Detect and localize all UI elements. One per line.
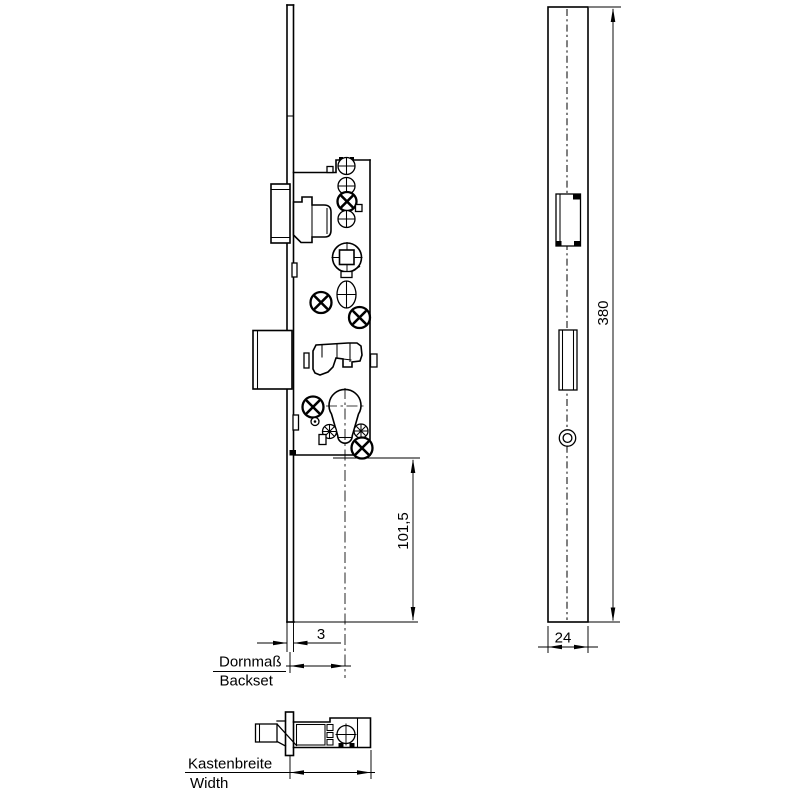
stack-square — [327, 740, 333, 746]
dim-24-value: 24 — [555, 630, 572, 647]
small-rect-port — [319, 435, 326, 445]
deadbolt-front — [253, 331, 292, 390]
front-view — [253, 5, 377, 678]
case-width-label-en: Width — [190, 775, 228, 792]
faceplate-front — [287, 5, 299, 622]
arrowhead-right — [331, 664, 345, 669]
arrowhead-right — [574, 645, 588, 650]
arrowhead-right — [273, 641, 287, 646]
ext-lines — [290, 750, 371, 779]
deadbolt-head — [253, 331, 292, 390]
cylinder-screw-hole — [559, 430, 575, 446]
small-square-port — [356, 205, 363, 212]
dim-101-5: 101,5 — [294, 458, 420, 622]
cylinder-cross — [336, 724, 357, 746]
latch-head — [271, 184, 290, 243]
latch-bolt-front — [271, 184, 331, 243]
hook-guide-left — [304, 353, 309, 368]
latch-tab — [573, 194, 580, 200]
arrowhead-up — [411, 459, 416, 473]
faceplate-side — [548, 7, 588, 622]
arrowhead-down — [611, 608, 616, 622]
latch-tab — [574, 241, 581, 246]
dim-case-width: Kastenbreite Width — [185, 750, 375, 792]
dim-24: 24 — [538, 626, 598, 653]
latch-tip — [256, 724, 278, 742]
latch-cutout — [556, 194, 581, 246]
dim-101-5-value: 101,5 — [395, 512, 412, 550]
top-view — [256, 712, 371, 756]
technical-drawing-page: 380 24 3 101,5 — [0, 0, 800, 800]
deadbolt-cutout-frame — [559, 330, 577, 390]
dim-backset: Dornmaß Backset — [213, 652, 351, 690]
screw-hole-inner — [563, 434, 572, 443]
arrowhead-left — [294, 641, 308, 646]
mortise-lock-drawing: 380 24 3 101,5 — [0, 0, 800, 800]
cylinder-foot — [339, 743, 344, 748]
arrowhead-up — [611, 8, 616, 22]
backset-label-en: Backset — [220, 673, 274, 690]
case-side-tab — [371, 354, 378, 367]
hook-bolt — [304, 343, 362, 375]
spindle-follower — [332, 242, 363, 278]
arrowhead-right — [357, 770, 371, 775]
arrowhead-down — [411, 607, 416, 621]
backset-label-de: Dornmaß — [219, 654, 282, 671]
case-top-notch — [327, 167, 333, 173]
dim-380-value: 380 — [595, 300, 612, 325]
case-width-label-de: Kastenbreite — [188, 756, 272, 773]
side-view — [548, 7, 588, 622]
stack-square — [327, 725, 333, 731]
ext-lines — [287, 622, 294, 652]
arrowhead-left — [290, 664, 304, 669]
latch-tab — [556, 241, 562, 246]
follower-stop — [341, 272, 352, 278]
pin-hole-center — [314, 420, 317, 423]
spindle-square-hole — [340, 250, 355, 265]
screw-column — [338, 157, 363, 228]
dim-3-value: 3 — [317, 626, 325, 643]
case-compartment — [297, 725, 326, 746]
dim-3: 3 — [257, 622, 341, 652]
cylinder-foot — [350, 743, 355, 748]
deadbolt-cutout — [559, 330, 577, 390]
faceplate-slot-lower — [293, 415, 299, 430]
faceplate-slot-upper — [292, 263, 297, 277]
stack-square — [327, 733, 333, 738]
arrowhead-left — [290, 770, 304, 775]
